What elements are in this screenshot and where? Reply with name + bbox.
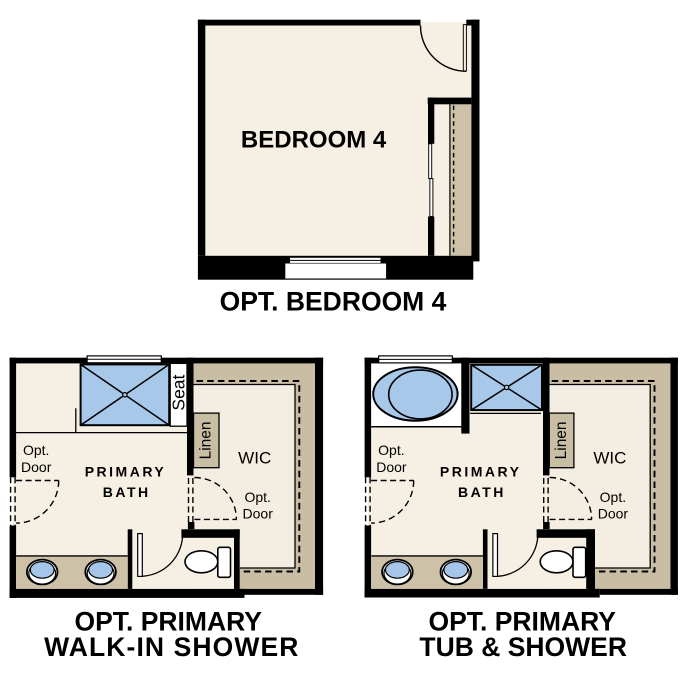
svg-text:Door: Door: [598, 506, 629, 522]
svg-text:Linen: Linen: [198, 421, 215, 459]
svg-text:PRIMARY: PRIMARY: [440, 463, 522, 479]
svg-text:BEDROOM 4: BEDROOM 4: [241, 127, 387, 154]
svg-text:Door: Door: [21, 459, 52, 475]
svg-text:BATH: BATH: [103, 484, 151, 500]
svg-text:Door: Door: [243, 506, 274, 522]
svg-text:WIC: WIC: [238, 449, 271, 468]
svg-text:Opt.: Opt.: [244, 489, 270, 505]
svg-text:WALK-IN SHOWER: WALK-IN SHOWER: [44, 632, 299, 662]
svg-text:PRIMARY: PRIMARY: [85, 463, 167, 479]
svg-text:WIC: WIC: [593, 449, 626, 468]
svg-text:Opt.: Opt.: [23, 442, 49, 458]
svg-text:TUB & SHOWER: TUB & SHOWER: [419, 632, 627, 662]
svg-text:Linen: Linen: [553, 421, 570, 459]
svg-text:BATH: BATH: [458, 484, 506, 500]
svg-text:Opt.: Opt.: [378, 442, 404, 458]
svg-text:Opt.: Opt.: [600, 489, 626, 505]
svg-text:Seat: Seat: [168, 374, 188, 410]
svg-text:OPT. BEDROOM 4: OPT. BEDROOM 4: [220, 287, 447, 317]
svg-text:Door: Door: [376, 459, 407, 475]
